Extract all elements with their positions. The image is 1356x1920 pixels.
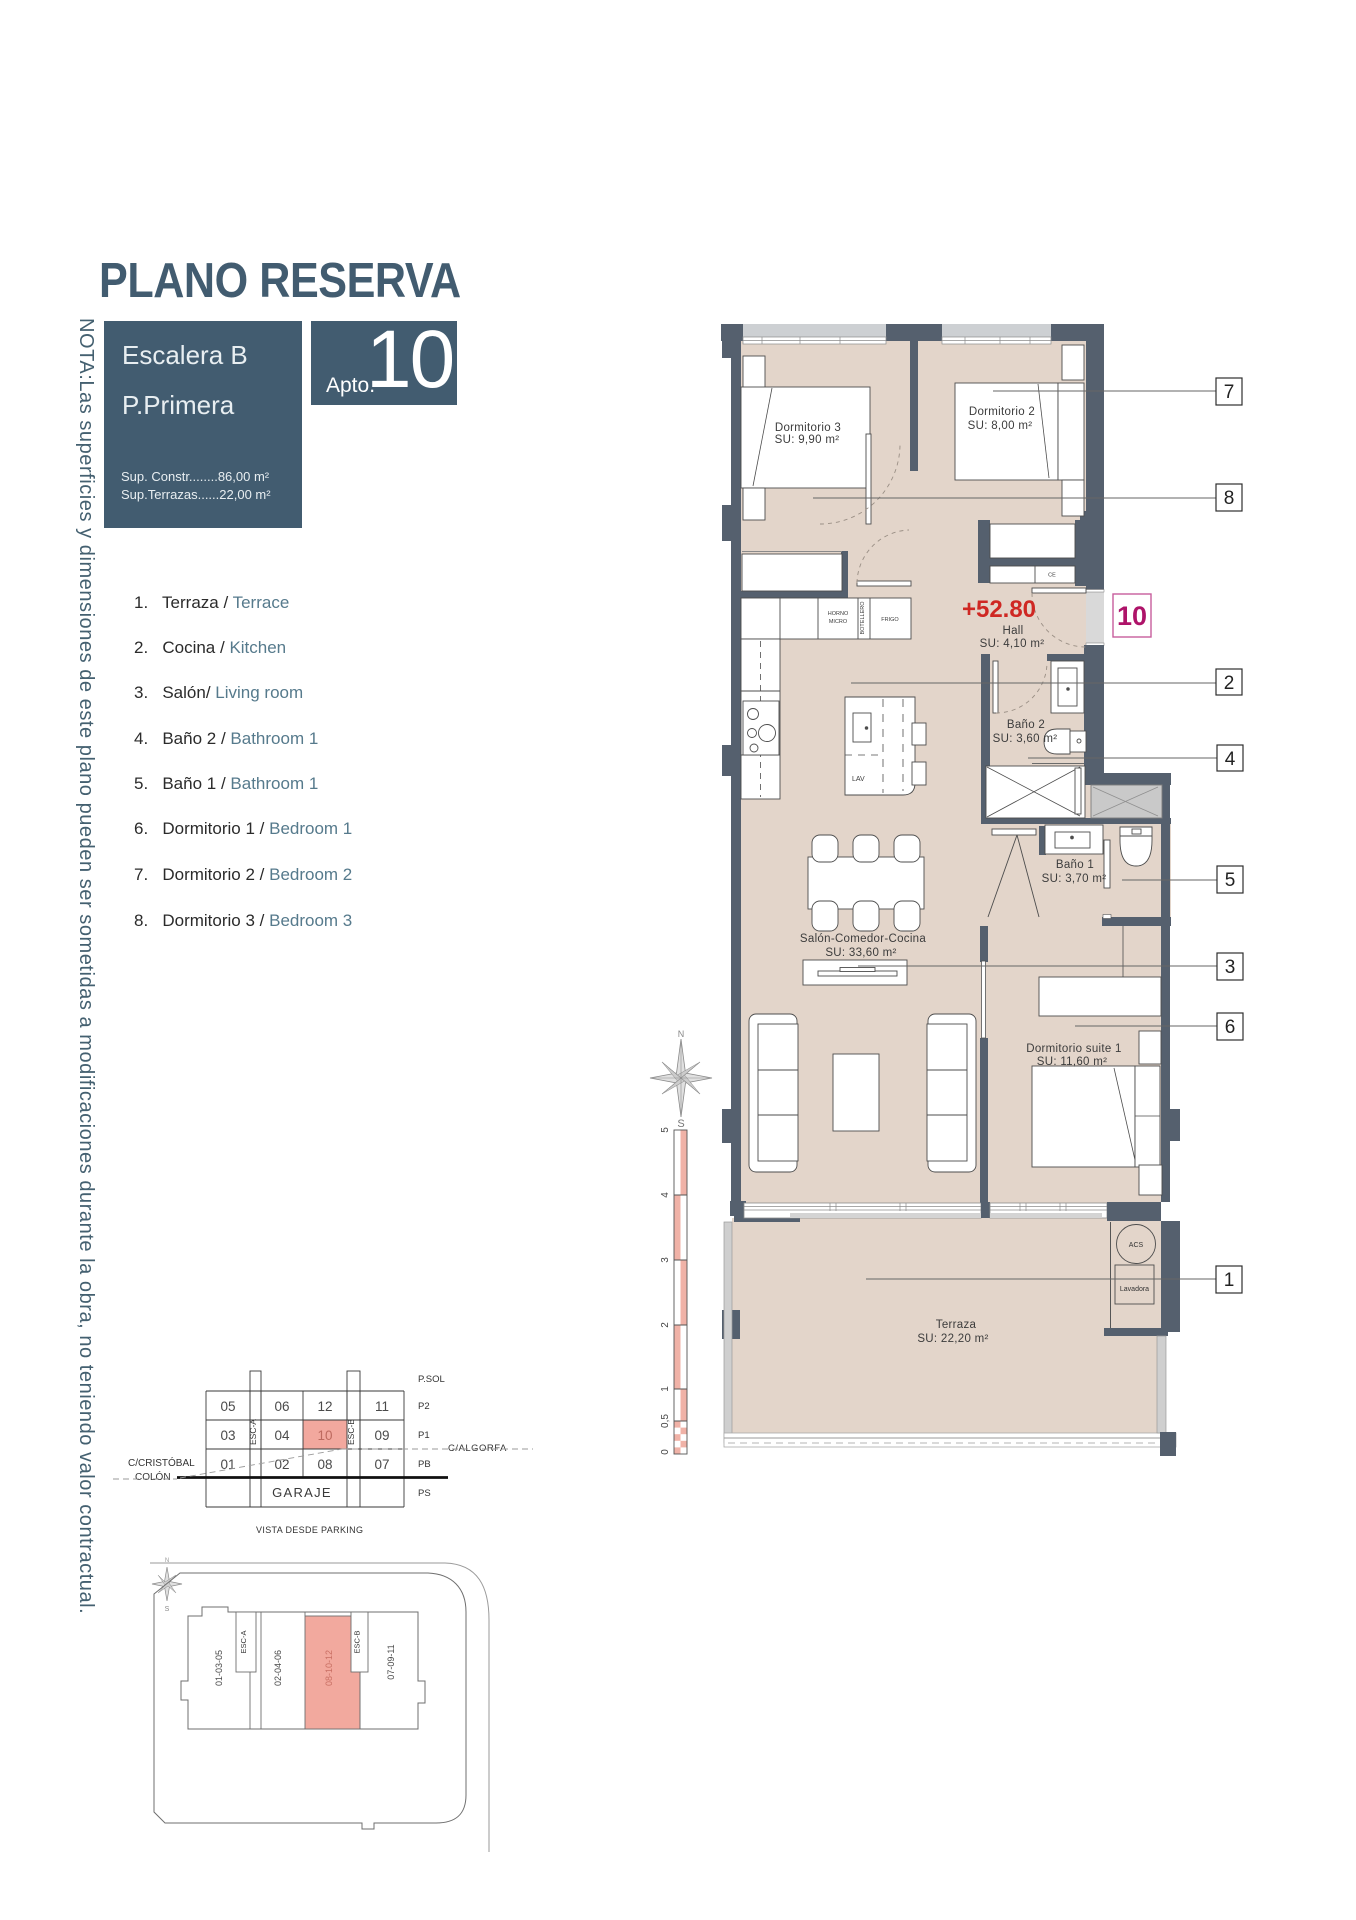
svg-text:C/ALGORFA: C/ALGORFA — [448, 1443, 507, 1454]
svg-text:FRIGO: FRIGO — [881, 617, 899, 623]
svg-text:P.SOL: P.SOL — [418, 1374, 445, 1385]
svg-text:SU: 22,20 m²: SU: 22,20 m² — [917, 1333, 988, 1345]
svg-text:S: S — [165, 1606, 170, 1613]
svg-text:Dormitorio 2: Dormitorio 2 — [969, 406, 1035, 418]
svg-text:PS: PS — [418, 1488, 431, 1499]
svg-text:Dormitorio 3: Dormitorio 3 — [775, 422, 841, 434]
svg-text:LAV: LAV — [852, 776, 865, 783]
svg-text:SU: 9,90 m²: SU: 9,90 m² — [775, 434, 840, 446]
svg-text:Baño 2: Baño 2 — [1007, 719, 1045, 731]
svg-text:ACS: ACS — [1129, 1242, 1144, 1249]
svg-text:SU: 8,00 m²: SU: 8,00 m² — [968, 420, 1033, 432]
svg-text:08-10-12: 08-10-12 — [324, 1650, 334, 1686]
svg-text:5: 5 — [660, 1127, 671, 1133]
svg-text:+52.80: +52.80 — [962, 596, 1036, 623]
svg-text:ESC-A: ESC-A — [239, 1631, 248, 1654]
svg-text:7: 7 — [1224, 382, 1235, 403]
svg-text:8: 8 — [1224, 488, 1235, 509]
svg-text:P2: P2 — [418, 1401, 430, 1412]
svg-text:10: 10 — [1117, 601, 1147, 631]
svg-text:3: 3 — [1225, 957, 1236, 978]
svg-text:04: 04 — [274, 1428, 290, 1443]
svg-text:2: 2 — [660, 1322, 671, 1328]
svg-text:Lavadora: Lavadora — [1120, 1286, 1149, 1293]
svg-text:PB: PB — [418, 1459, 431, 1470]
svg-text:1: 1 — [660, 1386, 671, 1392]
svg-text:Dormitorio suite 1: Dormitorio suite 1 — [1026, 1043, 1122, 1055]
svg-text:07: 07 — [374, 1457, 389, 1472]
svg-text:4: 4 — [1225, 749, 1236, 770]
svg-text:Baño 1: Baño 1 — [1056, 859, 1094, 871]
svg-text:01-03-05: 01-03-05 — [214, 1650, 224, 1686]
svg-text:4: 4 — [660, 1192, 671, 1198]
svg-text:1: 1 — [1224, 1270, 1235, 1291]
svg-text:03: 03 — [220, 1428, 235, 1443]
svg-text:10: 10 — [317, 1428, 332, 1443]
svg-text:0: 0 — [660, 1449, 671, 1455]
svg-text:ESC-B: ESC-B — [346, 1419, 356, 1445]
svg-text:SU: 3,70 m²: SU: 3,70 m² — [1042, 873, 1107, 885]
svg-text:Hall: Hall — [1002, 625, 1023, 637]
svg-text:COLÓN: COLÓN — [135, 1470, 171, 1483]
svg-text:09: 09 — [374, 1428, 389, 1443]
svg-text:5: 5 — [1225, 870, 1236, 891]
svg-text:02-04-06: 02-04-06 — [273, 1650, 283, 1686]
svg-text:MICRO: MICRO — [829, 619, 848, 625]
svg-text:6: 6 — [1225, 1017, 1236, 1038]
svg-text:06: 06 — [274, 1399, 289, 1414]
svg-text:01: 01 — [220, 1457, 235, 1472]
svg-text:05: 05 — [220, 1399, 235, 1414]
svg-text:CE: CE — [1048, 573, 1056, 579]
svg-text:07-09-11: 07-09-11 — [386, 1644, 396, 1679]
svg-text:Terraza: Terraza — [936, 1319, 977, 1331]
svg-text:02: 02 — [274, 1457, 289, 1472]
svg-text:SU: 3,60 m²: SU: 3,60 m² — [993, 733, 1058, 745]
svg-text:HORNO: HORNO — [828, 611, 849, 617]
svg-text:GARAJE: GARAJE — [272, 1485, 332, 1500]
svg-text:SU: 11,60 m²: SU: 11,60 m² — [1037, 1056, 1108, 1068]
svg-text:0,5: 0,5 — [660, 1414, 671, 1428]
svg-text:S: S — [677, 1118, 684, 1130]
svg-text:SU: 4,10 m²: SU: 4,10 m² — [980, 638, 1045, 650]
svg-text:SU: 33,60 m²: SU: 33,60 m² — [825, 947, 896, 959]
svg-text:ESC-A: ESC-A — [248, 1419, 258, 1445]
svg-text:3: 3 — [660, 1257, 671, 1263]
svg-text:C/CRISTÓBAL: C/CRISTÓBAL — [128, 1456, 195, 1469]
svg-text:12: 12 — [317, 1399, 332, 1414]
svg-text:08: 08 — [317, 1457, 332, 1472]
svg-text:N: N — [678, 1029, 685, 1039]
svg-text:Salón-Comedor-Cocina: Salón-Comedor-Cocina — [800, 933, 926, 945]
svg-text:2: 2 — [1224, 673, 1235, 694]
svg-text:BOTELLERO: BOTELLERO — [860, 601, 866, 635]
svg-text:11: 11 — [375, 1399, 389, 1414]
svg-text:ESC-B: ESC-B — [353, 1631, 362, 1654]
svg-text:P1: P1 — [418, 1430, 430, 1441]
